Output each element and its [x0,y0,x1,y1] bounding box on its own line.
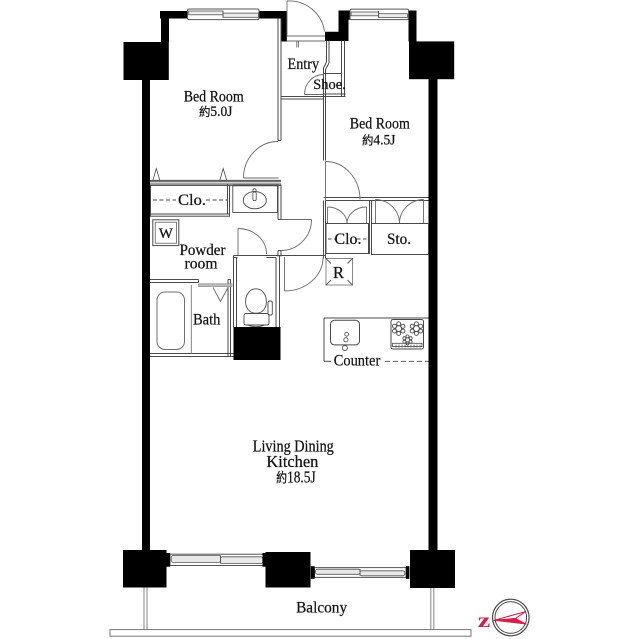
svg-text:Sto.: Sto. [387,231,411,248]
svg-text:約4.5J: 約4.5J [362,133,396,149]
svg-text:Clo.: Clo. [335,231,362,248]
svg-text:room: room [185,255,218,272]
svg-text:Shoe.: Shoe. [313,77,346,93]
svg-text:Entry: Entry [288,56,320,73]
svg-text:Counter: Counter [334,353,381,370]
svg-text:約18.5J: 約18.5J [276,467,316,486]
svg-text:Bed Room: Bed Room [184,88,244,105]
svg-text:W: W [159,226,174,242]
svg-text:Clo.: Clo. [178,192,206,209]
svg-text:約5.0J: 約5.0J [199,104,233,120]
svg-text:Bed Room: Bed Room [350,116,410,133]
svg-text:z: z [478,608,491,632]
svg-text:Balcony: Balcony [296,599,347,616]
svg-text:R: R [333,263,344,282]
svg-text:Bath: Bath [193,312,221,329]
